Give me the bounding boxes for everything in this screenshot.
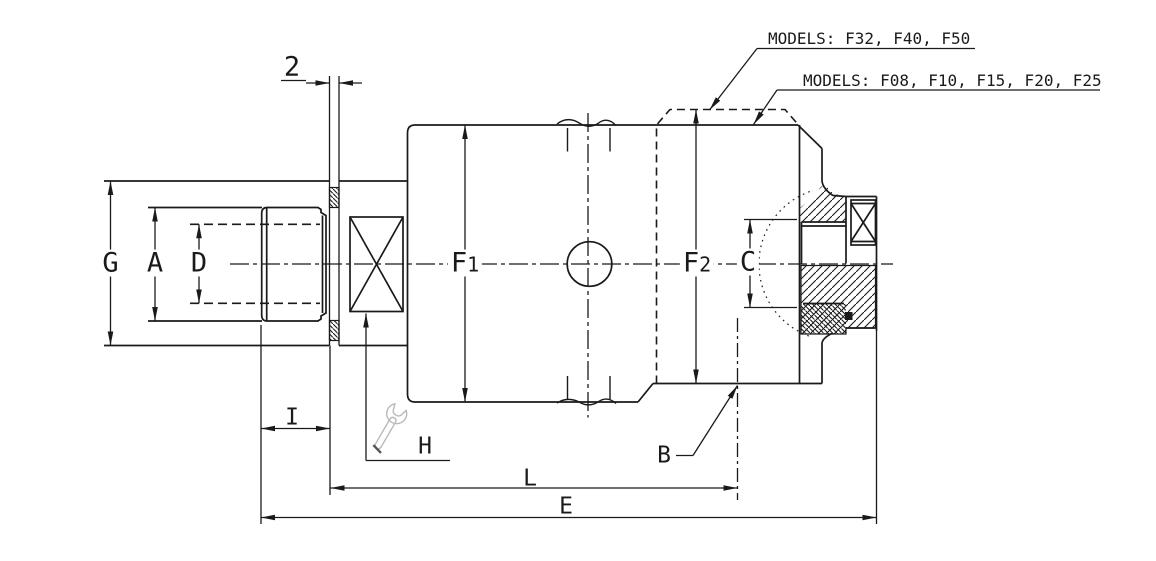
dimension-label-g: G: [99, 249, 121, 276]
dimension-label-f1: F1: [448, 250, 482, 277]
callout-large-models: MODELS: F32, F40, F50: [768, 31, 970, 47]
rotor-flange-section-lower: [801, 304, 846, 334]
seal-ring-mark: [845, 312, 853, 320]
rotor-flange-section-upper: [800, 186, 846, 222]
seal-section-bottom: [330, 321, 340, 341]
technical-drawing-canvas: G A D F1 F2 C 2 I H L E B MODELS: F32, F…: [0, 0, 1156, 561]
dimension-label-b: B: [657, 445, 671, 468]
callout-small-models: MODELS: F08, F10, F15, F20, F25: [803, 73, 1102, 89]
dimension-label-c: C: [737, 249, 759, 276]
bearing-symbol-right: [851, 200, 876, 245]
wrench-icon: [367, 402, 409, 455]
seal-section-top: [330, 188, 340, 208]
dimension-label-f2: F2: [680, 250, 714, 277]
dimension-label-a: A: [144, 249, 166, 276]
dimension-label-seal-width: 2: [284, 54, 300, 81]
dimension-label-l: L: [523, 468, 537, 491]
dimension-label-i: I: [285, 407, 299, 430]
leader-small-models: [754, 90, 1101, 125]
section-hatching: [330, 186, 876, 341]
large-models-dashed-outline: [657, 110, 799, 384]
hidden-lines: [190, 110, 799, 384]
dimension-label-h: H: [418, 436, 432, 459]
leader-b: [676, 386, 738, 456]
break-marks: [557, 120, 616, 405]
part-outline: [104, 76, 877, 405]
dimension-label-d: D: [188, 249, 210, 276]
dimension-label-e: E: [559, 496, 573, 519]
